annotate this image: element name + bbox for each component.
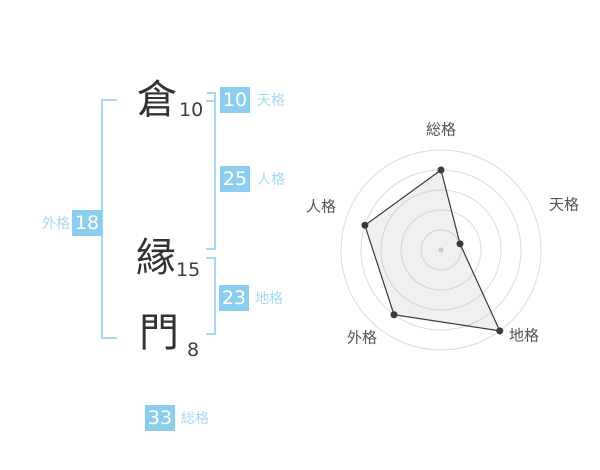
radar-chart-container: 総格天格地格外格人格 [291,100,591,400]
givenname-kanji-1: 縁 [136,238,176,278]
soukaku-value-badge: 33 [145,405,175,431]
tenkaku-value-badge: 10 [220,87,250,113]
givenname-kanji-2: 門 [139,313,179,353]
jinkaku-bracket-top-tick [206,100,216,102]
surname-kanji: 倉 [137,80,177,120]
stroke-count-2: 15 [176,261,200,280]
tenkaku-hook-vertical [214,92,216,100]
chikaku-bracket-top-tick [206,257,216,259]
jinkaku-label: 人格 [257,173,285,187]
soukaku-label: 総格 [181,412,209,426]
stroke-count-3: 8 [187,341,199,360]
jinkaku-bracket-bottom-tick [206,248,216,250]
chikaku-bracket-bottom-tick [206,333,216,335]
radar-axis-label-0: 総格 [426,121,456,139]
radar-axis-label-4: 人格 [306,198,336,216]
radar-axis-label-2: 地格 [509,327,539,345]
chikaku-value-badge: 23 [219,285,249,311]
radar-axis-label-1: 天格 [549,196,579,214]
jinkaku-bracket-vertical [214,100,216,250]
jinkaku-value-badge: 25 [220,166,250,192]
chikaku-bracket-vertical [214,257,216,335]
radar-chart: 総格天格地格外格人格 [291,100,591,400]
gaikaku-label: 外格 [42,217,70,231]
gaikaku-value-badge: 18 [72,210,102,236]
tenkaku-label: 天格 [257,94,285,108]
stroke-count-1: 10 [179,101,203,120]
chikaku-label: 地格 [255,292,283,306]
radar-axis-label-3: 外格 [347,329,377,347]
gaikaku-bracket-top-tick [101,99,117,101]
gaikaku-bracket-bottom-tick [101,337,117,339]
